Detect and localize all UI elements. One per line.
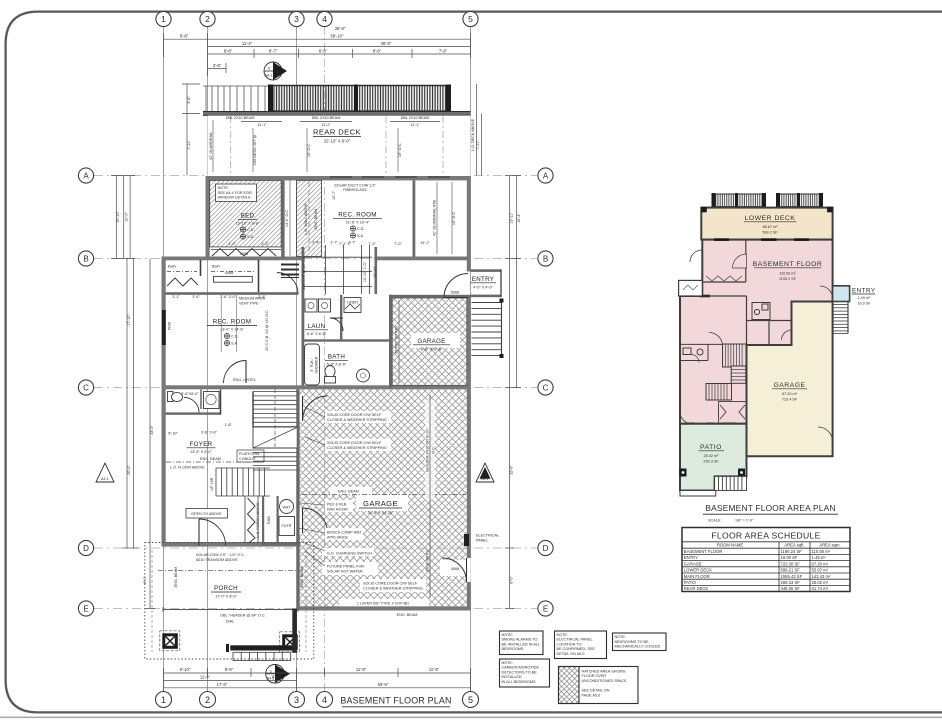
svg-text:MEDIUM AREA: MEDIUM AREA — [239, 297, 266, 301]
svg-text:6X16 GR 8'1": 6X16 GR 8'1" — [426, 548, 430, 571]
svg-text:110.52 m²: 110.52 m² — [779, 272, 796, 276]
svg-text:16" O.C.: 16" O.C. — [452, 211, 456, 225]
svg-text:BE CONFIRMED, SEE: BE CONFIRMED, SEE — [557, 647, 596, 651]
svg-text:GARAGE: GARAGE — [773, 382, 805, 389]
svg-text:599.21 SF: 599.21 SF — [781, 568, 801, 573]
svg-text:SEE A4.4 FOR EGR.: SEE A4.4 FOR EGR. — [218, 191, 253, 195]
svg-text:10'-10": 10'-10" — [116, 211, 120, 223]
svg-text:LOWER DECK: LOWER DECK — [684, 568, 712, 573]
svg-text:C: C — [83, 384, 89, 393]
svg-text:L.O. FLOOR ABOVE: L.O. FLOOR ABOVE — [170, 466, 205, 470]
svg-text:GARAGE: GARAGE — [417, 338, 445, 345]
svg-text:BED: BED — [241, 213, 255, 220]
svg-text:17'-6": 17'-6" — [217, 682, 228, 687]
svg-text:8'-7": 8'-7" — [269, 48, 278, 53]
svg-text:SEE DETAIL ON: SEE DETAIL ON — [582, 689, 610, 693]
svg-text:3: 3 — [294, 695, 299, 705]
svg-text:PANEL: PANEL — [476, 539, 488, 543]
svg-text:ENTRY: ENTRY — [852, 288, 876, 295]
svg-text:SMOKE ALARMS TO: SMOKE ALARMS TO — [502, 638, 538, 642]
svg-text:16" O.C.: 16" O.C. — [307, 143, 311, 157]
svg-text:9'-6" X 9'-8": 9'-6" X 9'-8" — [421, 347, 443, 352]
svg-text:1: 1 — [161, 695, 166, 705]
svg-text:BASEMENT FLOOR PLAN: BASEMENT FLOOR PLAN — [340, 696, 451, 706]
svg-text:38'-8": 38'-8" — [335, 26, 346, 31]
svg-text:7'-11": 7'-11" — [476, 140, 480, 150]
svg-text:21'-6" X 10'-4": 21'-6" X 10'-4" — [346, 221, 370, 225]
svg-text:UP 16R: UP 16R — [210, 477, 214, 490]
svg-text:BASEMENT FLOOR: BASEMENT FLOOR — [684, 549, 723, 554]
svg-text:58'-10": 58'-10" — [331, 34, 345, 39]
svg-text:6'-5": 6'-5" — [319, 48, 328, 53]
svg-text:CARBON MONOXIDE: CARBON MONOXIDE — [502, 666, 540, 670]
svg-text:11'-8": 11'-8" — [429, 667, 440, 672]
svg-text:2: 2 — [205, 695, 210, 705]
svg-text:1190.2 SF: 1190.2 SF — [779, 277, 797, 281]
svg-text:MECHANICALLY COOLED: MECHANICALLY COOLED — [615, 645, 661, 649]
svg-text:8'-6": 8'-6" — [224, 48, 233, 53]
svg-text:7'-0": 7'-0" — [394, 242, 402, 246]
svg-text:269.33 SF: 269.33 SF — [781, 580, 801, 585]
svg-text:REAR DECK: REAR DECK — [313, 128, 361, 137]
svg-text:DBL "HEADER @ 84" O.C.: DBL "HEADER @ 84" O.C. — [220, 614, 265, 618]
svg-text:ENG. LINTEL: ENG. LINTEL — [233, 378, 256, 382]
svg-text:DBL 2X10 BEAM: DBL 2X10 BEAM — [312, 116, 341, 120]
svg-text:E: E — [543, 605, 548, 614]
svg-text:NOTE:: NOTE: — [615, 635, 626, 639]
svg-text:1/8" = 1'-0": 1/8" = 1'-0" — [735, 519, 754, 523]
svg-text:19'-2": 19'-2" — [420, 241, 430, 245]
svg-text:IN ALL BEDROOMS: IN ALL BEDROOMS — [502, 680, 537, 684]
svg-text:2X6 STR @ 16" O.C.: 2X6 STR @ 16" O.C. — [302, 254, 306, 289]
svg-text:11'-2": 11'-2" — [321, 123, 331, 127]
svg-text:55.67 m²: 55.67 m² — [763, 225, 779, 229]
svg-text:WINDOW DETAILS: WINDOW DETAILS — [218, 196, 251, 200]
svg-text:1.49 m²: 1.49 m² — [812, 555, 827, 560]
svg-text:L.O. WALL ABOVE: L.O. WALL ABOVE — [304, 203, 308, 235]
svg-text:D: D — [83, 544, 89, 553]
svg-text:DIAL: DIAL — [226, 620, 234, 624]
svg-text:110.58 m²: 110.58 m² — [812, 549, 831, 554]
svg-text:1'-6" 3'-0": 1'-6" 3'-0" — [220, 295, 237, 299]
svg-text:6'-0": 6'-0" — [510, 576, 514, 584]
svg-text:5'-6" X 6'-6": 5'-6" X 6'-6" — [307, 332, 327, 336]
svg-text:5036: 5036 — [168, 322, 172, 330]
svg-text:1 LAYER 5/8" TYPE X GYP BD: 1 LAYER 5/8" TYPE X GYP BD — [357, 602, 409, 606]
svg-text:C.D.: C.D. — [357, 227, 365, 231]
svg-text:723.4 SF: 723.4 SF — [782, 398, 798, 402]
svg-text:ENTRY: ENTRY — [684, 555, 698, 560]
svg-text:ENG. BEAM: ENG. BEAM — [174, 567, 178, 588]
svg-text:S.A.: S.A. — [357, 234, 364, 238]
svg-text:Bath: Bath — [168, 265, 176, 269]
svg-text:NOTE:: NOTE: — [218, 186, 229, 190]
svg-text:BE INSTALLED IN ALL: BE INSTALLED IN ALL — [502, 642, 541, 646]
svg-text:3'-4": 3'-4" — [312, 241, 320, 245]
svg-text:AREA sqft.: AREA sqft. — [784, 543, 804, 548]
svg-text:BUILDER 6X16 GR 8'-10": BUILDER 6X16 GR 8'-10" — [426, 428, 430, 472]
svg-text:14'-0" O.C.: 14'-0" O.C. — [285, 209, 289, 227]
svg-text:5: 5 — [468, 695, 473, 705]
svg-text:L.O. DECK ABOVE: L.O. DECK ABOVE — [471, 118, 475, 151]
svg-text:21'-6" X 24'-10": 21'-6" X 24'-10" — [368, 511, 394, 515]
svg-text:CLOSER & WEATHER STRIPPING: CLOSER & WEATHER STRIPPING — [327, 418, 387, 422]
svg-text:C.D.: C.D. — [231, 335, 239, 339]
svg-text:B: B — [83, 255, 88, 264]
svg-text:HATCHED AREA SHOWS: HATCHED AREA SHOWS — [582, 669, 626, 673]
svg-text:55.67 m²: 55.67 m² — [812, 568, 829, 573]
svg-text:4'-1": 4'-1" — [228, 242, 236, 246]
svg-text:16.00 SF: 16.00 SF — [781, 555, 798, 560]
svg-text:32'-10" X 8'-0": 32'-10" X 8'-0" — [324, 139, 351, 144]
svg-text:16" O.C.: 16" O.C. — [398, 143, 402, 157]
svg-text:SCALE:: SCALE: — [708, 519, 721, 523]
svg-text:269.3 SF: 269.3 SF — [703, 460, 719, 464]
svg-text:20 C.C.B. 63 @ 16" O.C.: 20 C.C.B. 63 @ 16" O.C. — [265, 309, 269, 351]
svg-text:25.02 m²: 25.02 m² — [704, 454, 720, 458]
svg-text:ENG. BEAM: ENG. BEAM — [314, 209, 318, 230]
svg-text:VENT PIPE: VENT PIPE — [239, 302, 259, 306]
svg-text:3: 3 — [294, 14, 299, 24]
svg-text:42" GUARDRAIL: 42" GUARDRAIL — [209, 132, 213, 160]
svg-text:3'-6" 3'-0": 3'-6" 3'-0" — [201, 431, 218, 435]
svg-text:5068: 5068 — [451, 291, 459, 295]
svg-text:GARAGE: GARAGE — [363, 499, 398, 508]
svg-text:4'-2": 4'-2" — [261, 242, 269, 246]
svg-text:17'-0" X 8'-0": 17'-0" X 8'-0" — [215, 595, 237, 599]
svg-text:B: B — [543, 255, 548, 264]
svg-text:SOLAR CDW 2.5" - 1/2" O.C.: SOLAR CDW 2.5" - 1/2" O.C. — [196, 553, 245, 557]
svg-text:A: A — [543, 172, 549, 181]
svg-text:S.A.: S.A. — [231, 342, 238, 346]
svg-text:6010 TRANSOM ABOVE: 6010 TRANSOM ABOVE — [196, 558, 238, 562]
svg-text:16.0 SF: 16.0 SF — [858, 302, 872, 306]
svg-text:ENG. BEAM: ENG. BEAM — [338, 490, 359, 494]
svg-text:11'-4": 11'-4" — [200, 675, 211, 680]
svg-text:DBL 2X10 BEAM: DBL 2X10 BEAM — [226, 116, 255, 120]
svg-text:4'-0" X 4'-0": 4'-0" X 4'-0" — [473, 286, 493, 290]
svg-text:FLOOR AREA SCHEDULE: FLOOR AREA SCHEDULE — [711, 531, 820, 541]
svg-text:7'-11": 7'-11" — [187, 140, 191, 150]
svg-text:REAR DECK: REAR DECK — [684, 586, 709, 591]
svg-text:ENG. BEAM: ENG. BEAM — [300, 567, 304, 588]
svg-text:MAIN FLOOR: MAIN FLOOR — [684, 574, 710, 579]
svg-text:10'-10": 10'-10" — [373, 266, 377, 278]
svg-text:PEX & RLB: PEX & RLB — [327, 503, 347, 507]
svg-text:FOYER: FOYER — [190, 441, 213, 448]
svg-text:ENG. BEAM: ENG. BEAM — [200, 457, 221, 461]
svg-text:13'-0" X 14'-6": 13'-0" X 14'-6" — [220, 328, 244, 332]
svg-text:3'-6": 3'-6" — [187, 96, 191, 104]
svg-text:CLOSER & WEATHER STRIPPING: CLOSER & WEATHER STRIPPING — [327, 446, 387, 450]
svg-text:143.43 m²: 143.43 m² — [812, 574, 831, 579]
svg-text:GARAGE: GARAGE — [684, 561, 702, 566]
svg-text:ENG. BEAM: ENG. BEAM — [397, 613, 418, 617]
svg-text:33'-0": 33'-0" — [150, 425, 154, 435]
svg-text:A4.1: A4.1 — [481, 477, 489, 481]
svg-text:DETECTORS TO BE: DETECTORS TO BE — [502, 670, 538, 674]
svg-text:16'-4": 16'-4" — [517, 213, 521, 223]
svg-text:1: 1 — [161, 14, 166, 24]
svg-text:11'-4": 11'-4" — [242, 41, 253, 46]
svg-text:APPLIANCE: APPLIANCE — [327, 536, 349, 540]
svg-text:NOTE:: NOTE: — [502, 661, 513, 665]
svg-text:32'-6": 32'-6" — [510, 465, 514, 475]
svg-text:SOLAR HOT WATER: SOLAR HOT WATER — [327, 570, 363, 574]
svg-text:42" GUARDRAIL ATB: 42" GUARDRAIL ATB — [433, 199, 437, 236]
svg-text:AREA sqm.: AREA sqm. — [819, 543, 840, 548]
svg-text:FIBERGLASS: FIBERGLASS — [343, 188, 367, 192]
svg-text:38'-6": 38'-6" — [381, 41, 392, 46]
svg-text:5: 5 — [468, 14, 473, 24]
svg-text:UNCONDITIONED SPACE.: UNCONDITIONED SPACE. — [582, 679, 628, 683]
svg-text:O.C.: O.C. — [432, 446, 436, 454]
svg-text:PAGE A5.0: PAGE A5.0 — [582, 693, 601, 697]
svg-text:BASEMENT FLOOR: BASEMENT FLOOR — [753, 261, 823, 268]
svg-text:FUTURE PANEL FOR: FUTURE PANEL FOR — [327, 565, 364, 569]
svg-text:59'-6": 59'-6" — [378, 682, 389, 687]
svg-text:5'-10": 5'-10" — [168, 432, 178, 436]
svg-text:2'-7": 2'-7" — [348, 241, 356, 245]
svg-text:2: 2 — [205, 14, 210, 24]
svg-text:4: 4 — [322, 695, 327, 705]
svg-text:DBL 2X10 BEAM: DBL 2X10 BEAM — [401, 116, 430, 120]
svg-text:25.02 m²: 25.02 m² — [812, 580, 829, 585]
svg-text:11'-1": 11'-1" — [257, 123, 267, 127]
svg-text:NOTE:: NOTE: — [502, 633, 513, 637]
svg-text:5068: 5068 — [240, 252, 248, 256]
svg-text:REC. ROOM: REC. ROOM — [213, 319, 251, 326]
svg-text:BEDROOMS: BEDROOMS — [502, 647, 524, 651]
svg-text:10'-10" X 8'-8": 10'-10" X 8'-8" — [236, 222, 260, 226]
svg-text:ELECTRICAL: ELECTRICAL — [476, 534, 499, 538]
svg-text:4068: 4068 — [451, 567, 459, 571]
svg-text:FLOOR OVER: FLOOR OVER — [582, 674, 607, 678]
svg-text:1190.24 SF: 1190.24 SF — [781, 549, 803, 554]
svg-text:SOLID CORE DOOR C/W SELF: SOLID CORE DOOR C/W SELF — [363, 582, 418, 586]
svg-text:C: C — [543, 384, 549, 393]
svg-text:67.20 m²: 67.20 m² — [812, 561, 829, 566]
svg-text:1.49 m²: 1.49 m² — [858, 296, 871, 300]
svg-text:8'-6": 8'-6" — [373, 48, 382, 53]
svg-text:5: 5 — [268, 67, 270, 71]
svg-text:NOTE:: NOTE: — [557, 633, 568, 637]
svg-text:Bath: Bath — [212, 265, 220, 269]
svg-text:CONDUIT: CONDUIT — [239, 457, 257, 461]
svg-text:5' TUB /: 5' TUB / — [310, 357, 314, 371]
svg-text:REC. ROOM: REC. ROOM — [338, 212, 376, 219]
svg-text:10'-10" 1'-0": 10'-10" 1'-0" — [363, 261, 367, 282]
svg-text:FUTR: FUTR — [282, 524, 292, 528]
svg-text:OPEN TO ABOVE: OPEN TO ABOVE — [191, 512, 222, 516]
svg-text:41.74 m²: 41.74 m² — [812, 586, 829, 591]
svg-text:599.2 SF: 599.2 SF — [762, 231, 778, 235]
svg-text:RAD ROOM: RAD ROOM — [327, 508, 348, 512]
svg-text:A4.1: A4.1 — [265, 74, 273, 78]
svg-text:LAUN: LAUN — [308, 323, 326, 330]
svg-text:A: A — [83, 172, 89, 181]
svg-text:13'-11": 13'-11" — [510, 212, 514, 224]
svg-text:10'-0": 10'-0" — [125, 212, 129, 222]
svg-text:13'-6" X 6'-0": 13'-6" X 6'-0" — [190, 450, 212, 454]
svg-text:S.A.: S.A. — [247, 235, 254, 239]
svg-text:A4.1: A4.1 — [101, 477, 109, 481]
svg-text:449.35 SF: 449.35 SF — [781, 586, 801, 591]
svg-text:1555.43 SF: 1555.43 SF — [781, 574, 803, 579]
svg-text:PATIO: PATIO — [684, 580, 697, 585]
svg-text:PORCH: PORCH — [214, 585, 238, 592]
svg-text:723.30 SF: 723.30 SF — [781, 561, 801, 566]
svg-text:LOCATION TO: LOCATION TO — [557, 642, 582, 646]
svg-text:LOWER DECK: LOWER DECK — [745, 215, 796, 222]
svg-text:2'-8"X5'-0": 2'-8"X5'-0" — [181, 392, 199, 396]
svg-text:BASEMENT FLOOR AREA PLAN: BASEMENT FLOOR AREA PLAN — [705, 503, 835, 513]
svg-text:RAD: RAD — [267, 516, 271, 524]
svg-text:11'-8": 11'-8" — [356, 667, 367, 672]
svg-text:7'-6": 7'-6" — [439, 48, 448, 53]
svg-text:ENTRY: ENTRY — [472, 276, 494, 283]
svg-text:1'-7": 1'-7" — [330, 241, 338, 245]
svg-text:C.D.: C.D. — [247, 228, 255, 232]
svg-text:G.D. CHARGING SWITCH: G.D. CHARGING SWITCH — [327, 552, 372, 556]
svg-text:67.20 m²: 67.20 m² — [782, 392, 798, 396]
svg-text:2X8 DECK JST @: 2X8 DECK JST @ — [253, 134, 257, 165]
svg-text:10'-7": 10'-7" — [332, 190, 336, 200]
svg-text:CLOSER & WEATHER STRIPPING: CLOSER & WEATHER STRIPPING — [363, 587, 423, 591]
svg-text:L.O. PORCH ABOVE: L.O. PORCH ABOVE — [256, 502, 260, 538]
svg-text:17'-10": 17'-10" — [127, 314, 131, 326]
svg-text:1'-8": 1'-8" — [224, 423, 232, 427]
svg-text:INSTALLED: INSTALLED — [502, 675, 522, 679]
svg-text:11'-1": 11'-1" — [410, 123, 420, 127]
svg-text:BOSCH COMP WAT: BOSCH COMP WAT — [327, 531, 362, 535]
svg-text:3'-1": 3'-1" — [172, 295, 180, 299]
svg-text:8'-10": 8'-10" — [180, 667, 191, 672]
svg-text:ELECTRICAL PANEL: ELECTRICAL PANEL — [557, 638, 593, 642]
svg-text:4068: 4068 — [225, 271, 233, 275]
svg-text:SOLID CORE DOOR C/W SELF: SOLID CORE DOOR C/W SELF — [327, 413, 382, 417]
svg-text:WAT: WAT — [283, 506, 292, 510]
svg-text:D: D — [543, 544, 549, 553]
svg-text:3'-6": 3'-6" — [213, 63, 222, 68]
svg-text:SOLID CORE DOOR C/W SELF: SOLID CORE DOOR C/W SELF — [327, 441, 382, 445]
svg-text:8'-6": 8'-6" — [225, 667, 234, 672]
svg-text:4: 4 — [322, 14, 327, 24]
svg-text:3'-6": 3'-6" — [192, 295, 200, 299]
svg-text:8'-8": 8'-8" — [180, 34, 189, 39]
svg-text:PATIO: PATIO — [700, 444, 722, 451]
svg-text:BEDROOMS TO BE: BEDROOMS TO BE — [615, 640, 650, 644]
svg-text:6'-2": 6'-2" — [272, 675, 281, 680]
svg-text:DETAIL ON A5.0: DETAIL ON A5.0 — [557, 652, 585, 656]
svg-text:36"X80" DR ATB: 36"X80" DR ATB — [395, 326, 399, 354]
svg-text:LINEN: LINEN — [347, 301, 358, 305]
svg-text:SHOWER: SHOWER — [315, 356, 319, 373]
svg-text:BATH: BATH — [328, 354, 345, 361]
svg-text:ROOM NAME: ROOM NAME — [717, 543, 743, 548]
svg-text:20'-0": 20'-0" — [127, 465, 131, 475]
svg-text:E: E — [83, 605, 88, 614]
